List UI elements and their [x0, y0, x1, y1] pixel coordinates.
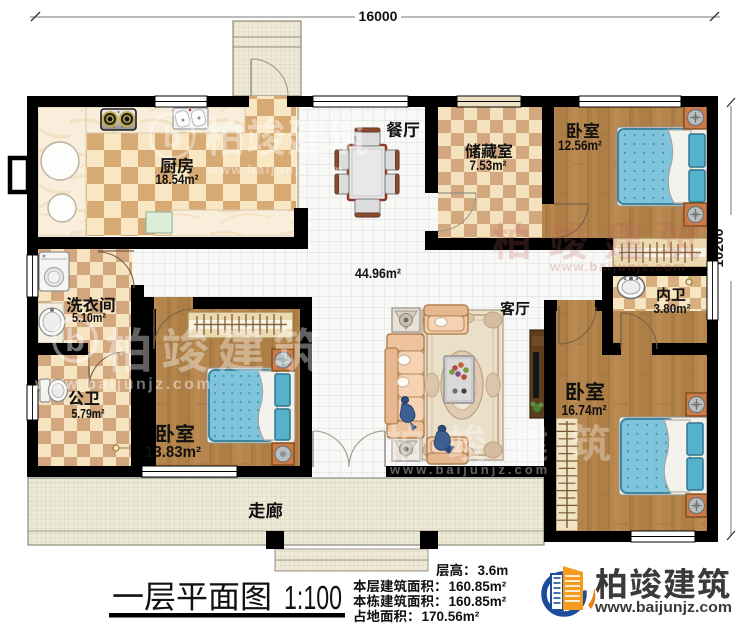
svg-text:www.baijunjz.com: www.baijunjz.com	[594, 599, 732, 616]
svg-text:160.85m²: 160.85m²	[449, 579, 507, 594]
svg-text:170.56m²: 170.56m²	[422, 609, 480, 624]
svg-text:www.baijunjz.com: www.baijunjz.com	[34, 376, 213, 393]
svg-text:12.56m²: 12.56m²	[558, 137, 602, 153]
svg-text:1:100: 1:100	[284, 579, 342, 616]
svg-text:16.74m²: 16.74m²	[562, 403, 607, 419]
svg-text:160.85m²: 160.85m²	[449, 594, 507, 609]
svg-text:www.baijunjz.com: www.baijunjz.com	[549, 259, 686, 274]
svg-text:16000: 16000	[359, 8, 398, 24]
svg-text:3.80m²: 3.80m²	[654, 301, 692, 316]
svg-text:7.53m²: 7.53m²	[470, 157, 507, 173]
svg-text:44.96m²: 44.96m²	[355, 265, 401, 281]
svg-text:5.79m²: 5.79m²	[72, 406, 106, 421]
svg-text:5.10m²: 5.10m²	[72, 310, 107, 325]
svg-text:b: b	[65, 322, 85, 358]
svg-text:13.83m²: 13.83m²	[145, 444, 201, 461]
svg-text:18.54m²: 18.54m²	[156, 171, 199, 187]
svg-text:www.baijunjz.com: www.baijunjz.com	[207, 162, 344, 177]
svg-text:www.baijunjz.com: www.baijunjz.com	[389, 462, 550, 477]
svg-text:b: b	[163, 121, 181, 154]
svg-text:3.6m: 3.6m	[478, 563, 509, 578]
